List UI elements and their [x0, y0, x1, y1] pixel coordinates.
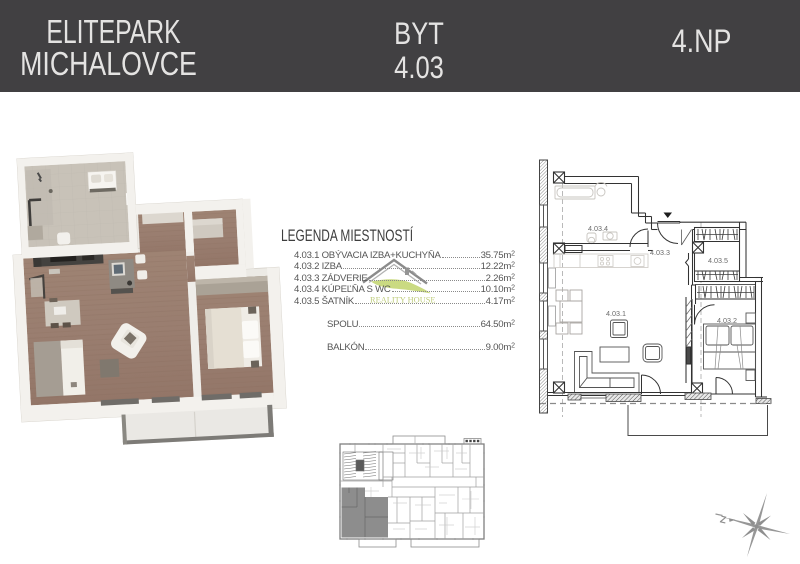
- svg-text:4.03.4: 4.03.4: [588, 224, 608, 233]
- svg-text:Z: Z: [719, 514, 727, 526]
- svg-text:4.03.5: 4.03.5: [708, 256, 728, 265]
- svg-text:4.03.1: 4.03.1: [606, 309, 626, 318]
- svg-text:4.03.3: 4.03.3: [650, 248, 670, 257]
